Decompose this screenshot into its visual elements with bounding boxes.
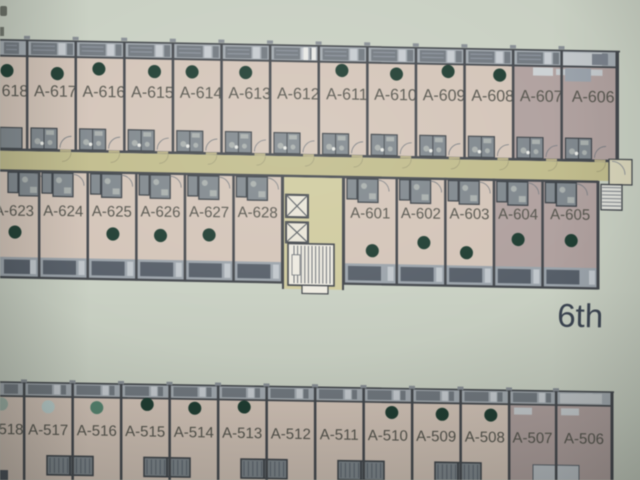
svg-text:A-624: A-624 xyxy=(43,203,83,221)
svg-text:A-614: A-614 xyxy=(180,84,223,103)
svg-text:A-615: A-615 xyxy=(131,83,174,102)
svg-text:A-515: A-515 xyxy=(125,423,165,441)
svg-text:618: 618 xyxy=(2,82,29,101)
svg-text:A-609: A-609 xyxy=(423,86,466,105)
svg-text:A-626: A-626 xyxy=(140,203,180,221)
svg-text:A-516: A-516 xyxy=(77,422,117,440)
svg-text:A-604: A-604 xyxy=(498,206,538,224)
svg-text:A-608: A-608 xyxy=(471,87,514,106)
svg-text:6th: 6th xyxy=(557,297,604,335)
svg-text:A-610: A-610 xyxy=(374,86,417,105)
svg-text:A-607: A-607 xyxy=(520,87,563,106)
svg-text:A-507: A-507 xyxy=(512,429,552,447)
svg-text:A-506: A-506 xyxy=(564,430,604,448)
svg-text:A-513: A-513 xyxy=(222,425,262,443)
svg-text:A-606: A-606 xyxy=(572,88,615,107)
svg-text:A-511: A-511 xyxy=(320,426,359,444)
svg-text:A-602: A-602 xyxy=(401,205,441,223)
svg-text:A-611: A-611 xyxy=(326,85,368,104)
svg-text:A-623: A-623 xyxy=(0,202,34,220)
svg-text:A-616: A-616 xyxy=(83,83,126,102)
svg-text:A-628: A-628 xyxy=(238,204,278,222)
svg-text:A-601: A-601 xyxy=(350,205,390,223)
svg-text:518: 518 xyxy=(0,421,24,438)
svg-text:A-517: A-517 xyxy=(28,421,68,439)
svg-text:A-603: A-603 xyxy=(449,205,489,223)
svg-text:A-625: A-625 xyxy=(92,203,132,221)
svg-text:A-512: A-512 xyxy=(271,425,311,443)
svg-text:A-617: A-617 xyxy=(34,82,77,101)
svg-text:A-612: A-612 xyxy=(277,85,320,104)
svg-text:A-627: A-627 xyxy=(189,204,229,222)
svg-text:A-508: A-508 xyxy=(465,429,505,447)
svg-text:A-509: A-509 xyxy=(416,428,456,446)
svg-text:A-613: A-613 xyxy=(228,84,271,103)
svg-text:A-510: A-510 xyxy=(368,427,408,445)
svg-text:A-514: A-514 xyxy=(174,424,214,442)
svg-text:A-605: A-605 xyxy=(550,206,590,224)
